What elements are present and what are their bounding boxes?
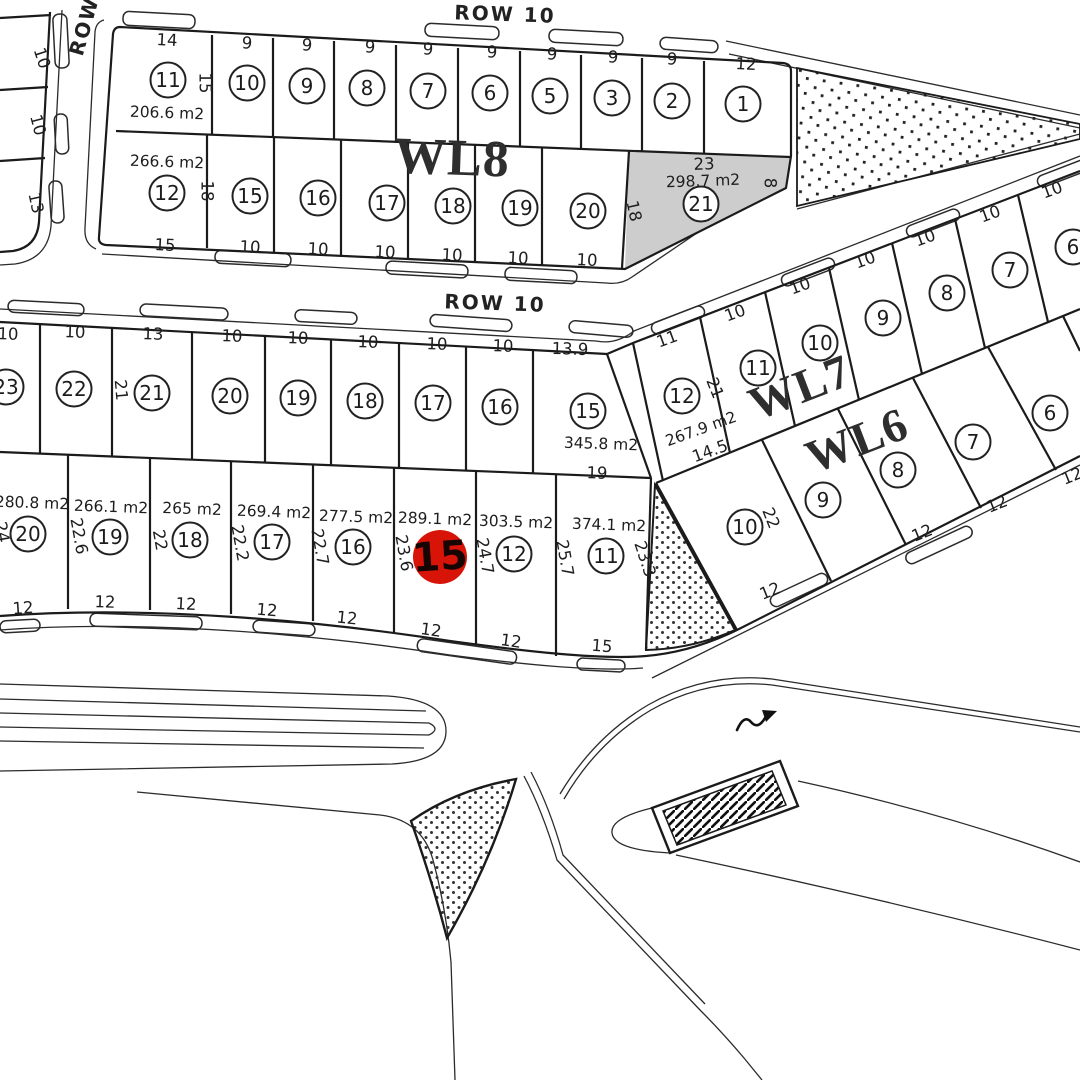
plot-number: 21 bbox=[139, 381, 164, 405]
plot-badge[interactable]: 21 bbox=[684, 187, 719, 222]
highlighted-plot-marker[interactable]: 15 bbox=[410, 528, 469, 586]
plot-badge[interactable]: 23 bbox=[0, 370, 24, 405]
plot-number: 20 bbox=[15, 522, 40, 546]
plot-number: 18 bbox=[440, 194, 465, 218]
band-frontage-curb bbox=[0, 626, 643, 669]
plot-badge[interactable]: 18 bbox=[436, 189, 471, 224]
highlighted-plot-number: 15 bbox=[411, 532, 470, 582]
dimension-label: 21 bbox=[111, 379, 132, 402]
plot-badge[interactable]: 8 bbox=[881, 453, 916, 488]
dimension-label: 10 bbox=[26, 112, 50, 137]
dimension-label: 10 bbox=[507, 248, 529, 268]
dimension-label: 8 bbox=[761, 178, 780, 189]
plot-number: 12 bbox=[501, 542, 526, 566]
dimension-label: 10 bbox=[30, 45, 55, 71]
area-label: 269.4 m2 bbox=[237, 502, 312, 523]
plot-badge[interactable]: 12 bbox=[150, 176, 185, 211]
plot-number: 2 bbox=[666, 89, 679, 113]
area-label: 374.1 m2 bbox=[572, 515, 647, 536]
band-row-divider bbox=[0, 452, 651, 478]
plot-badge[interactable]: 6 bbox=[473, 76, 508, 111]
reserve-wedge-hatched bbox=[797, 68, 1080, 206]
plot-number: 18 bbox=[177, 528, 202, 552]
plot-number: 7 bbox=[967, 430, 980, 454]
dimension-label: 13.9 bbox=[551, 339, 588, 359]
plot-badge[interactable]: 2 bbox=[655, 84, 690, 119]
plot-badge[interactable]: 15 bbox=[233, 179, 268, 214]
area-label: 265 m2 bbox=[162, 499, 222, 519]
plot-number: 3 bbox=[606, 86, 619, 110]
dimension-label: 10 bbox=[492, 336, 514, 356]
area-label: 303.5 m2 bbox=[479, 512, 554, 533]
plot-number: 11 bbox=[155, 68, 180, 92]
plot-badge[interactable]: 6 bbox=[1033, 396, 1068, 431]
plot-number: 8 bbox=[361, 76, 374, 100]
street-label: ROW 10 bbox=[454, 0, 556, 28]
dimension-label: 9 bbox=[364, 37, 375, 57]
plot-number: 11 bbox=[745, 356, 770, 380]
plot-badge[interactable]: 11 bbox=[741, 351, 776, 386]
plot-number: 19 bbox=[507, 196, 532, 220]
plot-badge[interactable]: 9 bbox=[806, 483, 841, 518]
dimension-label: 12 bbox=[12, 598, 34, 618]
street-label: ROW bbox=[64, 0, 104, 58]
plot-badge[interactable]: 20 bbox=[213, 379, 248, 414]
plot-number: 16 bbox=[487, 395, 512, 419]
plot-badge[interactable]: 16 bbox=[483, 390, 518, 425]
plot-badge[interactable]: 9 bbox=[866, 301, 901, 336]
plot-number: 19 bbox=[97, 525, 122, 549]
plot-badge[interactable]: 10 bbox=[803, 326, 838, 361]
plot-number: 10 bbox=[807, 331, 832, 355]
plot-badge[interactable]: 8 bbox=[350, 71, 385, 106]
dimension-label: 10 bbox=[0, 324, 19, 344]
area-label: 266.6 m2 bbox=[130, 152, 205, 173]
plot-badge[interactable]: 20 bbox=[571, 194, 606, 229]
plot-badge[interactable]: 17 bbox=[255, 525, 290, 560]
plot-badge[interactable]: 15 bbox=[571, 394, 606, 429]
se-road-north-curb bbox=[560, 678, 1080, 794]
plot-number: 6 bbox=[1067, 235, 1080, 259]
dimension-label: 12 bbox=[735, 54, 757, 74]
dimension-label: 22.6 bbox=[66, 516, 91, 555]
plot-number: 23 bbox=[0, 375, 19, 399]
plot-number: 6 bbox=[1044, 401, 1057, 425]
dimension-label: 22 bbox=[149, 528, 171, 552]
plot-number: 19 bbox=[285, 386, 310, 410]
plot-number: 16 bbox=[340, 535, 365, 559]
area-label: 266.1 m2 bbox=[74, 497, 149, 518]
plot-badge[interactable]: 8 bbox=[930, 276, 965, 311]
dimension-label: 10 bbox=[441, 245, 463, 265]
plot-badge[interactable]: 21 bbox=[135, 376, 170, 411]
plot-badge[interactable]: 5 bbox=[533, 79, 568, 114]
se-road-north-curb-inner bbox=[564, 684, 1080, 799]
plot-number: 18 bbox=[352, 389, 377, 413]
plot-badge[interactable]: 16 bbox=[336, 530, 371, 565]
plot-badge[interactable]: 7 bbox=[993, 253, 1028, 288]
dimension-label: 9 bbox=[422, 39, 433, 59]
plot-number: 17 bbox=[374, 191, 399, 215]
plot-badge[interactable]: 12 bbox=[497, 537, 532, 572]
median-strip-lines bbox=[0, 699, 435, 748]
dimension-label: 18 bbox=[198, 181, 217, 202]
dimension-label: 10 bbox=[357, 332, 379, 352]
flow-arrow-icon bbox=[737, 718, 765, 730]
plot-number: 20 bbox=[575, 199, 600, 223]
street-label: ROW 10 bbox=[444, 289, 546, 317]
plot-number: 20 bbox=[217, 384, 242, 408]
plot-number: 22 bbox=[61, 377, 86, 401]
plot-number: 7 bbox=[1004, 258, 1017, 282]
dimension-label: 10 bbox=[576, 250, 598, 270]
plot-number: 6 bbox=[484, 81, 497, 105]
plot-badge[interactable]: 22 bbox=[57, 372, 92, 407]
plot-badge[interactable]: 20 bbox=[11, 517, 46, 552]
plot-badge[interactable]: 17 bbox=[370, 186, 405, 221]
plot-number: 9 bbox=[817, 488, 830, 512]
dimension-label: 12 bbox=[336, 607, 359, 628]
plot-number: 9 bbox=[301, 74, 314, 98]
dimension-label: 14 bbox=[156, 30, 178, 50]
plot-badge[interactable]: 1 bbox=[726, 87, 761, 122]
dimension-label: 10 bbox=[221, 326, 243, 346]
dimension-label: 10 bbox=[426, 334, 448, 354]
block-label: WL8 bbox=[393, 127, 511, 188]
dimension-label: 13 bbox=[25, 191, 48, 215]
dimension-label: 12 bbox=[256, 600, 279, 621]
dimension-label: 9 bbox=[607, 47, 618, 67]
plot-badge[interactable]: 7 bbox=[411, 74, 446, 109]
plot-number: 8 bbox=[941, 281, 954, 305]
dimension-label: 15 bbox=[196, 73, 215, 94]
dimension-label: 12 bbox=[94, 592, 116, 612]
dimension-label: 15 bbox=[154, 235, 176, 255]
dimension-label: 12 bbox=[419, 619, 442, 641]
plot-number: 17 bbox=[259, 530, 284, 554]
plot-badge[interactable]: 10 bbox=[728, 510, 763, 545]
plot-badge[interactable]: 6 bbox=[1056, 230, 1080, 265]
dimension-label: 12 bbox=[757, 578, 784, 603]
plot-number: 21 bbox=[688, 192, 713, 216]
plot-number: 15 bbox=[575, 399, 600, 423]
area-label: 206.6 m2 bbox=[130, 103, 205, 124]
plot-number: 1 bbox=[737, 92, 750, 116]
plot-number: 10 bbox=[234, 71, 259, 95]
plot-badge[interactable]: 11 bbox=[589, 539, 624, 574]
wl6-plot-dividers bbox=[656, 316, 1080, 630]
dimension-label: 12 bbox=[984, 491, 1011, 516]
dimension-label: 22.7 bbox=[307, 527, 332, 566]
cadastral-plot-map: 1499999999121518151010101010102318810101… bbox=[0, 0, 1080, 1080]
area-label: 277.5 m2 bbox=[319, 507, 394, 528]
south-branch-west-curb bbox=[137, 792, 455, 1080]
plot-badge[interactable]: 11 bbox=[151, 63, 186, 98]
dimension-label: 10 bbox=[239, 237, 261, 257]
plot-badge[interactable]: 19 bbox=[93, 520, 128, 555]
plot-number: 8 bbox=[892, 458, 905, 482]
dimension-label: 21 bbox=[702, 375, 727, 402]
area-label: 289.1 m2 bbox=[398, 509, 473, 530]
plot-badge[interactable]: 18 bbox=[348, 384, 383, 419]
dimension-label: 12 bbox=[175, 594, 197, 614]
plot-number: 12 bbox=[154, 181, 179, 205]
area-label: 345.8 m2 bbox=[564, 434, 639, 455]
dimension-label: 9 bbox=[546, 44, 557, 64]
dimension-label: 10 bbox=[722, 300, 748, 325]
plot-number: 16 bbox=[305, 186, 330, 210]
plot-number: 17 bbox=[420, 391, 445, 415]
plot-badge[interactable]: 10 bbox=[230, 66, 265, 101]
dimension-label: 9 bbox=[241, 33, 252, 53]
area-label: 280.8 m2 bbox=[0, 493, 69, 514]
plot-badge[interactable]: 17 bbox=[416, 386, 451, 421]
dimension-label: 10 bbox=[374, 242, 396, 262]
plot-number: 12 bbox=[669, 384, 694, 408]
plot-number: 15 bbox=[237, 184, 262, 208]
dimension-label: 13 bbox=[142, 324, 164, 344]
dimension-label: 19 bbox=[586, 463, 608, 483]
plot-badge[interactable]: 12 bbox=[665, 379, 700, 414]
plot-number: 5 bbox=[544, 84, 557, 108]
plot-number: 9 bbox=[877, 306, 890, 330]
left-street-curb bbox=[0, 10, 62, 265]
dimension-label: 11 bbox=[654, 326, 680, 351]
plot-badge[interactable]: 9 bbox=[290, 69, 325, 104]
dimension-label: 9 bbox=[486, 42, 497, 62]
dimension-label: 9 bbox=[666, 49, 677, 69]
wl6-frontage-curb bbox=[652, 465, 1080, 678]
dimension-label: 15 bbox=[591, 636, 614, 657]
dimension-label: 12 bbox=[1059, 463, 1080, 488]
dimension-label: 10 bbox=[287, 328, 309, 348]
plot-number: 10 bbox=[732, 515, 757, 539]
dimension-label: 12 bbox=[499, 630, 522, 652]
stipple-island bbox=[411, 779, 516, 938]
dimension-label: 10 bbox=[307, 239, 329, 259]
plot-badge[interactable]: 19 bbox=[281, 381, 316, 416]
plot-badge[interactable]: 18 bbox=[173, 523, 208, 558]
dimension-label: 9 bbox=[301, 35, 312, 55]
map-canvas: 1499999999121518151010101010102318810101… bbox=[0, 0, 1080, 1080]
plot-badge[interactable]: 19 bbox=[503, 191, 538, 226]
dimension-label: 10 bbox=[977, 201, 1003, 226]
plot-badge[interactable]: 3 bbox=[595, 81, 630, 116]
median-strip-outline bbox=[0, 684, 446, 771]
plot-number: 11 bbox=[593, 544, 618, 568]
plot-badge[interactable]: 16 bbox=[301, 181, 336, 216]
plot-number: 7 bbox=[422, 79, 435, 103]
plot-badge[interactable]: 7 bbox=[956, 425, 991, 460]
stipple-triangle-plot bbox=[646, 485, 735, 650]
dimension-label: 10 bbox=[64, 322, 86, 342]
